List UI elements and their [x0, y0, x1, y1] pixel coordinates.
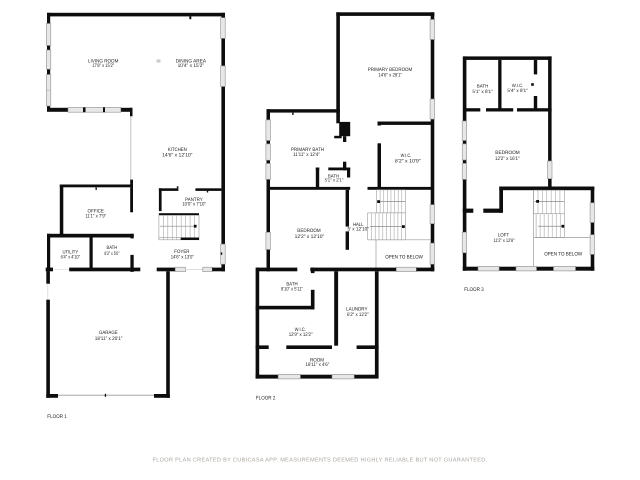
- svg-text:12'9" x 12'2": 12'9" x 12'2": [289, 332, 313, 338]
- svg-text:12'2" x 12'10": 12'2" x 12'10": [295, 234, 325, 240]
- svg-text:OPEN TO BELOW: OPEN TO BELOW: [385, 254, 423, 260]
- svg-text:OPEN TO BELOW: OPEN TO BELOW: [544, 252, 582, 258]
- svg-text:BATH: BATH: [477, 83, 489, 88]
- svg-text:FLOOR 3: FLOOR 3: [464, 287, 484, 293]
- svg-text:5'4" x 8'1": 5'4" x 8'1": [507, 88, 528, 94]
- svg-text:8'2" x 10'9": 8'2" x 10'9": [395, 158, 421, 164]
- svg-text:5'1" x 8'1": 5'1" x 8'1": [472, 89, 493, 95]
- svg-text:W.I.C.: W.I.C.: [512, 83, 524, 88]
- svg-text:11'11" x 12'4": 11'11" x 12'4": [293, 152, 320, 158]
- svg-text:14'6" x 28'1": 14'6" x 28'1": [378, 73, 402, 79]
- svg-text:6'4" x 4'10": 6'4" x 4'10": [61, 254, 81, 260]
- svg-text:12'2" x 16'1": 12'2" x 16'1": [495, 156, 520, 162]
- svg-text:10'4" x 15'2": 10'4" x 15'2": [178, 63, 204, 69]
- svg-text:14'6" x 12'10": 14'6" x 12'10": [162, 153, 192, 159]
- svg-text:5' x 12'10": 5' x 12'10": [347, 227, 369, 233]
- svg-text:8'3" x 5'0": 8'3" x 5'0": [104, 251, 119, 257]
- svg-text:14'6" x 13'0": 14'6" x 13'0": [171, 255, 194, 261]
- svg-text:17'8" x 15'2": 17'8" x 15'2": [92, 63, 114, 69]
- svg-text:11'2" x 12'8": 11'2" x 12'8": [493, 238, 514, 244]
- svg-text:11'1" x 7'9": 11'1" x 7'9": [85, 214, 106, 220]
- svg-text:FLOOR 1: FLOOR 1: [47, 414, 67, 420]
- svg-text:5'1" x 2'1": 5'1" x 2'1": [325, 178, 344, 183]
- svg-text:6'2" x 12'2": 6'2" x 12'2": [347, 312, 369, 318]
- svg-text:18'11" x 4'6": 18'11" x 4'6": [306, 362, 330, 368]
- svg-text:10'0" x 7'10": 10'0" x 7'10": [182, 202, 206, 208]
- svg-text:18'11" x 20'1": 18'11" x 20'1": [95, 336, 123, 342]
- svg-text:8'10" x 5'11": 8'10" x 5'11": [281, 287, 303, 293]
- svg-text:FLOOR PLAN CREATED BY CUBICASA: FLOOR PLAN CREATED BY CUBICASA APP. MEAS…: [153, 457, 488, 463]
- svg-text:FLOOR 2: FLOOR 2: [256, 395, 276, 401]
